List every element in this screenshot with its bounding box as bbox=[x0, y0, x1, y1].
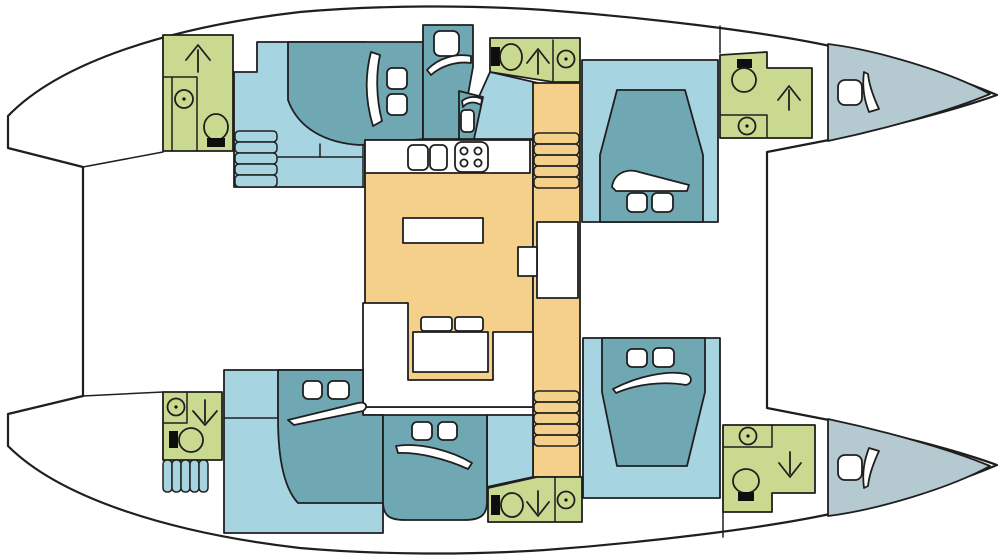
hatch bbox=[627, 193, 647, 212]
step-tread bbox=[235, 153, 277, 164]
island-table bbox=[403, 218, 483, 243]
toilet-tank bbox=[169, 431, 178, 448]
toilet-tank bbox=[491, 495, 500, 515]
steps-stbd-aft bbox=[163, 460, 208, 492]
sink-drain bbox=[174, 405, 177, 408]
hatch bbox=[652, 193, 673, 212]
step-tread bbox=[190, 460, 199, 492]
sink-drain bbox=[746, 434, 749, 437]
hatch-small bbox=[461, 110, 474, 132]
hatch bbox=[387, 94, 407, 115]
nav-desk bbox=[537, 222, 578, 298]
cushion bbox=[421, 317, 452, 331]
sink-drain bbox=[182, 97, 185, 100]
hatch bbox=[303, 381, 322, 399]
sink-drain bbox=[564, 57, 567, 60]
step-tread bbox=[235, 142, 277, 153]
hatch bbox=[653, 348, 674, 367]
yacht-floorplan bbox=[0, 0, 1000, 560]
step-tread bbox=[199, 460, 208, 492]
stove-top bbox=[455, 142, 488, 172]
cabin-stbd-fwd bbox=[583, 338, 720, 498]
bathroom-floor bbox=[163, 392, 222, 460]
step-tread bbox=[235, 131, 277, 142]
cabin-floor-wedge bbox=[487, 415, 533, 487]
steps-port-aft bbox=[235, 131, 277, 187]
sofa-table bbox=[413, 332, 488, 372]
hatch bbox=[434, 31, 459, 56]
galley bbox=[365, 140, 530, 173]
hatch bbox=[412, 422, 432, 440]
nav-seat bbox=[518, 247, 537, 276]
step-tread bbox=[163, 460, 172, 492]
hatch bbox=[387, 68, 407, 89]
step-tread bbox=[181, 460, 190, 492]
hatch bbox=[328, 381, 349, 399]
toilet-tank bbox=[738, 492, 754, 501]
stove-icon bbox=[455, 142, 488, 172]
galley-sink bbox=[408, 145, 428, 170]
hatch bbox=[838, 80, 862, 105]
step-tread bbox=[172, 460, 181, 492]
sink-drain bbox=[564, 498, 567, 501]
toilet-tank bbox=[737, 59, 752, 68]
cabin-port-fwd bbox=[582, 60, 718, 222]
cushion bbox=[455, 317, 483, 331]
floorplan-svg bbox=[0, 0, 1000, 560]
hatch bbox=[627, 349, 647, 367]
bow-locker-port bbox=[828, 44, 990, 141]
toilet-tank bbox=[491, 47, 500, 66]
toilet-tank bbox=[207, 138, 225, 147]
sink-drain bbox=[745, 124, 748, 127]
step-tread bbox=[235, 164, 277, 175]
step-tread bbox=[235, 175, 277, 187]
hatch bbox=[838, 455, 862, 480]
hatch bbox=[438, 422, 457, 440]
bathroom-port-aft bbox=[163, 35, 233, 151]
bow-locker-stbd bbox=[828, 419, 990, 516]
bed bbox=[383, 415, 487, 520]
galley-sink bbox=[430, 145, 447, 170]
cabin-stbd-aft bbox=[224, 370, 383, 533]
